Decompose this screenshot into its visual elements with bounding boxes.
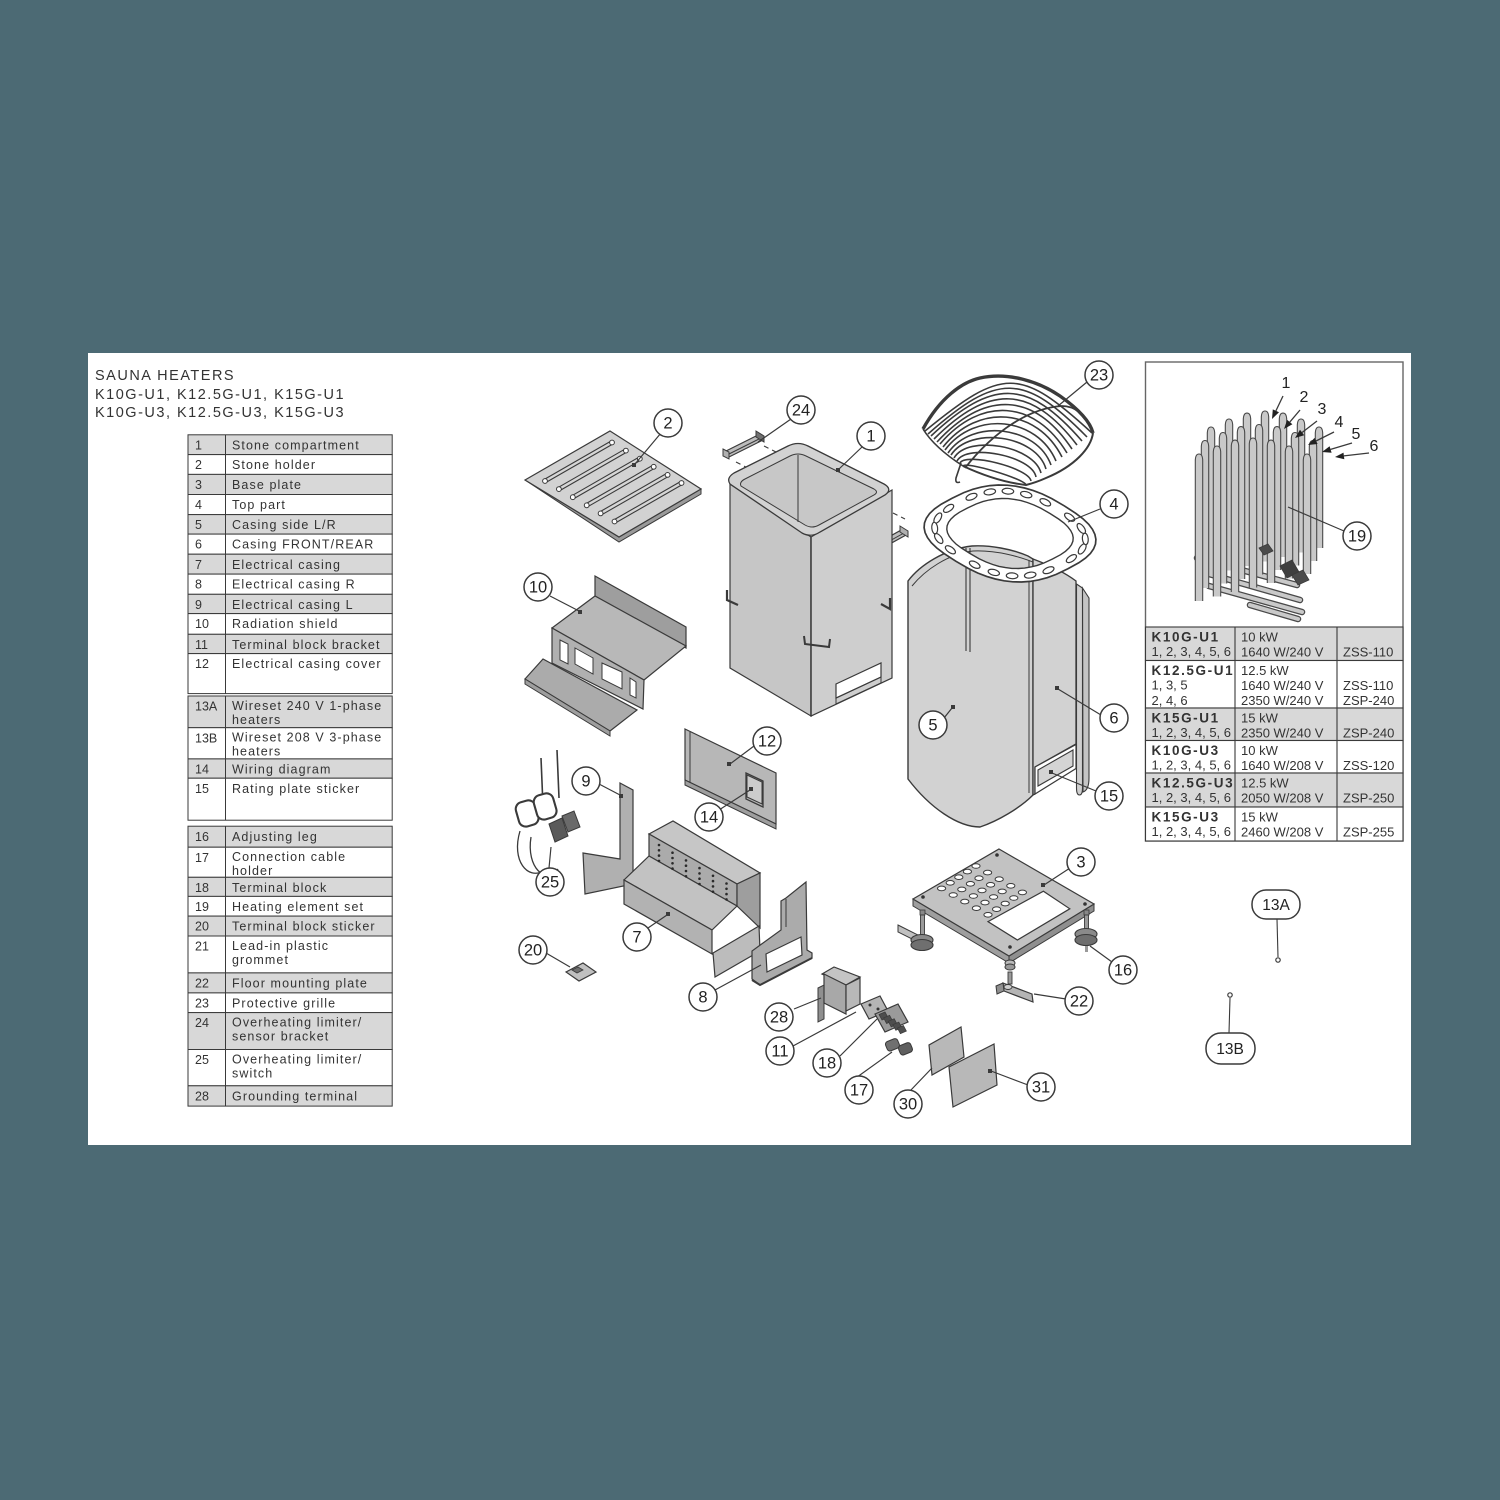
svg-text:Electrical casing: Electrical casing: [232, 558, 341, 572]
svg-text:K12.5G-U1: K12.5G-U1: [1152, 663, 1235, 678]
svg-text:ZSP-240: ZSP-240: [1343, 726, 1394, 741]
svg-text:K10G-U3: K10G-U3: [1152, 743, 1220, 758]
svg-text:25: 25: [541, 874, 559, 892]
svg-text:2350 W/240 V: 2350 W/240 V: [1241, 693, 1324, 708]
svg-text:ZSP-255: ZSP-255: [1343, 825, 1394, 840]
svg-text:5: 5: [1352, 426, 1361, 443]
svg-text:K12.5G-U3: K12.5G-U3: [1152, 776, 1235, 791]
svg-text:10: 10: [195, 617, 209, 631]
svg-text:1640 W/240 V: 1640 W/240 V: [1241, 645, 1324, 660]
svg-text:16: 16: [195, 830, 209, 844]
svg-text:3: 3: [195, 478, 202, 492]
svg-text:Wiring diagram: Wiring diagram: [232, 763, 331, 777]
svg-text:10 kW: 10 kW: [1241, 630, 1279, 645]
svg-text:1640 W/208 V: 1640 W/208 V: [1241, 758, 1324, 773]
svg-text:18: 18: [195, 881, 209, 895]
svg-text:heaters: heaters: [232, 745, 281, 759]
svg-text:Heating element set: Heating element set: [232, 900, 364, 914]
svg-text:28: 28: [770, 1009, 788, 1027]
svg-text:switch: switch: [232, 1067, 273, 1081]
svg-text:heaters: heaters: [232, 713, 281, 727]
svg-text:21: 21: [195, 940, 209, 954]
svg-text:5: 5: [195, 518, 202, 532]
svg-text:K15G-U3: K15G-U3: [1152, 810, 1220, 825]
svg-text:15: 15: [195, 782, 209, 796]
svg-text:4: 4: [195, 498, 202, 512]
svg-text:12.5 kW: 12.5 kW: [1241, 663, 1289, 678]
svg-text:7: 7: [195, 558, 202, 572]
svg-text:14: 14: [700, 809, 718, 827]
svg-text:ZSS-110: ZSS-110: [1343, 678, 1393, 693]
svg-text:Base plate: Base plate: [232, 478, 302, 492]
svg-text:13A: 13A: [1262, 897, 1290, 914]
svg-text:Rating plate sticker: Rating plate sticker: [232, 782, 360, 796]
svg-text:Adjusting leg: Adjusting leg: [232, 830, 318, 844]
svg-text:12: 12: [195, 657, 209, 671]
svg-text:16: 16: [1114, 962, 1132, 980]
svg-text:Electrical casing cover: Electrical casing cover: [232, 657, 382, 671]
svg-text:1: 1: [866, 428, 875, 446]
svg-text:1, 2, 3, 4, 5, 6: 1, 2, 3, 4, 5, 6: [1152, 725, 1232, 740]
svg-text:Electrical casing R: Electrical casing R: [232, 578, 356, 592]
svg-text:19: 19: [1348, 528, 1366, 546]
svg-text:3: 3: [1076, 854, 1085, 872]
svg-text:6: 6: [1109, 710, 1118, 728]
svg-text:3: 3: [1318, 401, 1327, 418]
svg-text:Casing FRONT/REAR: Casing FRONT/REAR: [232, 538, 374, 552]
svg-text:Lead-in plastic: Lead-in plastic: [232, 939, 329, 953]
svg-text:8: 8: [698, 989, 707, 1007]
svg-text:12.5 kW: 12.5 kW: [1241, 776, 1289, 791]
svg-text:sensor bracket: sensor bracket: [232, 1030, 329, 1044]
svg-text:Casing side L/R: Casing side L/R: [232, 518, 337, 532]
svg-text:20: 20: [524, 942, 542, 960]
svg-text:ZSS-120: ZSS-120: [1343, 758, 1394, 773]
svg-text:ZSP-240: ZSP-240: [1343, 693, 1394, 708]
svg-text:Electrical casing L: Electrical casing L: [232, 598, 354, 612]
svg-text:12: 12: [758, 733, 776, 751]
svg-text:Terminal block: Terminal block: [232, 881, 327, 895]
svg-text:17: 17: [195, 851, 209, 865]
svg-text:Wireset 208 V 3-phase: Wireset 208 V 3-phase: [232, 731, 382, 745]
svg-text:13B: 13B: [1216, 1041, 1244, 1058]
svg-text:24: 24: [195, 1016, 209, 1030]
svg-text:13A: 13A: [195, 700, 218, 714]
svg-text:Stone compartment: Stone compartment: [232, 438, 360, 452]
svg-text:15 kW: 15 kW: [1241, 810, 1279, 825]
svg-text:7: 7: [632, 929, 641, 947]
svg-text:2: 2: [663, 415, 672, 433]
svg-text:28: 28: [195, 1089, 209, 1103]
svg-text:ZSP-250: ZSP-250: [1343, 791, 1394, 806]
svg-text:9: 9: [195, 598, 202, 612]
svg-text:SAUNA HEATERS: SAUNA HEATERS: [95, 368, 235, 384]
svg-text:2460 W/208 V: 2460 W/208 V: [1241, 825, 1324, 840]
svg-text:1, 2, 3, 4, 5, 6: 1, 2, 3, 4, 5, 6: [1152, 644, 1232, 659]
svg-text:1, 3, 5: 1, 3, 5: [1152, 678, 1188, 693]
svg-text:1: 1: [195, 438, 202, 452]
svg-text:25: 25: [195, 1053, 209, 1067]
svg-text:23: 23: [195, 997, 209, 1011]
svg-text:2, 4, 6: 2, 4, 6: [1152, 693, 1188, 708]
svg-text:2050 W/208 V: 2050 W/208 V: [1241, 791, 1324, 806]
svg-text:Stone holder: Stone holder: [232, 458, 316, 472]
svg-text:14: 14: [195, 763, 209, 777]
svg-text:grommet: grommet: [232, 953, 289, 967]
svg-text:1, 2, 3, 4, 5, 6: 1, 2, 3, 4, 5, 6: [1152, 824, 1232, 839]
svg-text:15 kW: 15 kW: [1241, 711, 1279, 726]
svg-text:Grounding terminal: Grounding terminal: [232, 1089, 358, 1103]
svg-text:2: 2: [1300, 389, 1309, 406]
svg-text:30: 30: [899, 1096, 917, 1114]
svg-text:1: 1: [1282, 375, 1291, 392]
svg-text:Terminal block sticker: Terminal block sticker: [232, 920, 376, 934]
svg-text:22: 22: [1070, 993, 1088, 1011]
svg-text:Top part: Top part: [232, 498, 286, 512]
svg-text:2350 W/240 V: 2350 W/240 V: [1241, 726, 1324, 741]
svg-text:5: 5: [928, 717, 937, 735]
svg-text:22: 22: [195, 977, 209, 991]
svg-text:1, 2, 3, 4, 5, 6: 1, 2, 3, 4, 5, 6: [1152, 790, 1232, 805]
svg-text:Radiation shield: Radiation shield: [232, 617, 339, 631]
svg-text:1640 W/240 V: 1640 W/240 V: [1241, 678, 1324, 693]
svg-text:17: 17: [850, 1082, 868, 1100]
svg-text:Floor mounting plate: Floor mounting plate: [232, 977, 368, 991]
svg-text:Protective grille: Protective grille: [232, 997, 336, 1011]
svg-text:Overheating limiter/: Overheating limiter/: [232, 1053, 362, 1067]
svg-text:15: 15: [1100, 788, 1118, 806]
svg-text:Wireset 240 V 1-phase: Wireset 240 V 1-phase: [232, 699, 382, 713]
svg-text:K10G-U3, K12.5G-U3, K15G-U3: K10G-U3, K12.5G-U3, K15G-U3: [95, 405, 345, 421]
svg-text:Terminal block bracket: Terminal block bracket: [232, 638, 381, 652]
svg-text:19: 19: [195, 900, 209, 914]
svg-text:Connection cable: Connection cable: [232, 850, 346, 864]
svg-text:6: 6: [1370, 438, 1379, 455]
svg-text:8: 8: [195, 578, 202, 592]
svg-text:4: 4: [1335, 414, 1344, 431]
svg-text:10: 10: [529, 579, 547, 597]
svg-text:2: 2: [195, 458, 202, 472]
svg-text:23: 23: [1090, 367, 1108, 385]
svg-text:11: 11: [195, 638, 208, 652]
svg-text:24: 24: [792, 402, 810, 420]
svg-text:13B: 13B: [195, 731, 217, 745]
svg-text:31: 31: [1032, 1079, 1050, 1097]
svg-text:1, 2, 3, 4, 5, 6: 1, 2, 3, 4, 5, 6: [1152, 758, 1232, 773]
svg-text:holder: holder: [232, 864, 273, 878]
svg-text:11: 11: [771, 1043, 788, 1061]
svg-text:4: 4: [1109, 496, 1118, 514]
svg-text:18: 18: [818, 1055, 836, 1073]
svg-text:ZSS-110: ZSS-110: [1343, 645, 1393, 660]
svg-text:K15G-U1: K15G-U1: [1152, 711, 1220, 726]
svg-text:Overheating limiter/: Overheating limiter/: [232, 1016, 362, 1030]
svg-text:9: 9: [581, 773, 590, 791]
svg-text:20: 20: [195, 920, 209, 934]
svg-text:K10G-U1, K12.5G-U1, K15G-U1: K10G-U1, K12.5G-U1, K15G-U1: [95, 387, 345, 403]
svg-text:6: 6: [195, 538, 202, 552]
svg-text:K10G-U1: K10G-U1: [1152, 630, 1220, 645]
svg-text:10 kW: 10 kW: [1241, 743, 1279, 758]
